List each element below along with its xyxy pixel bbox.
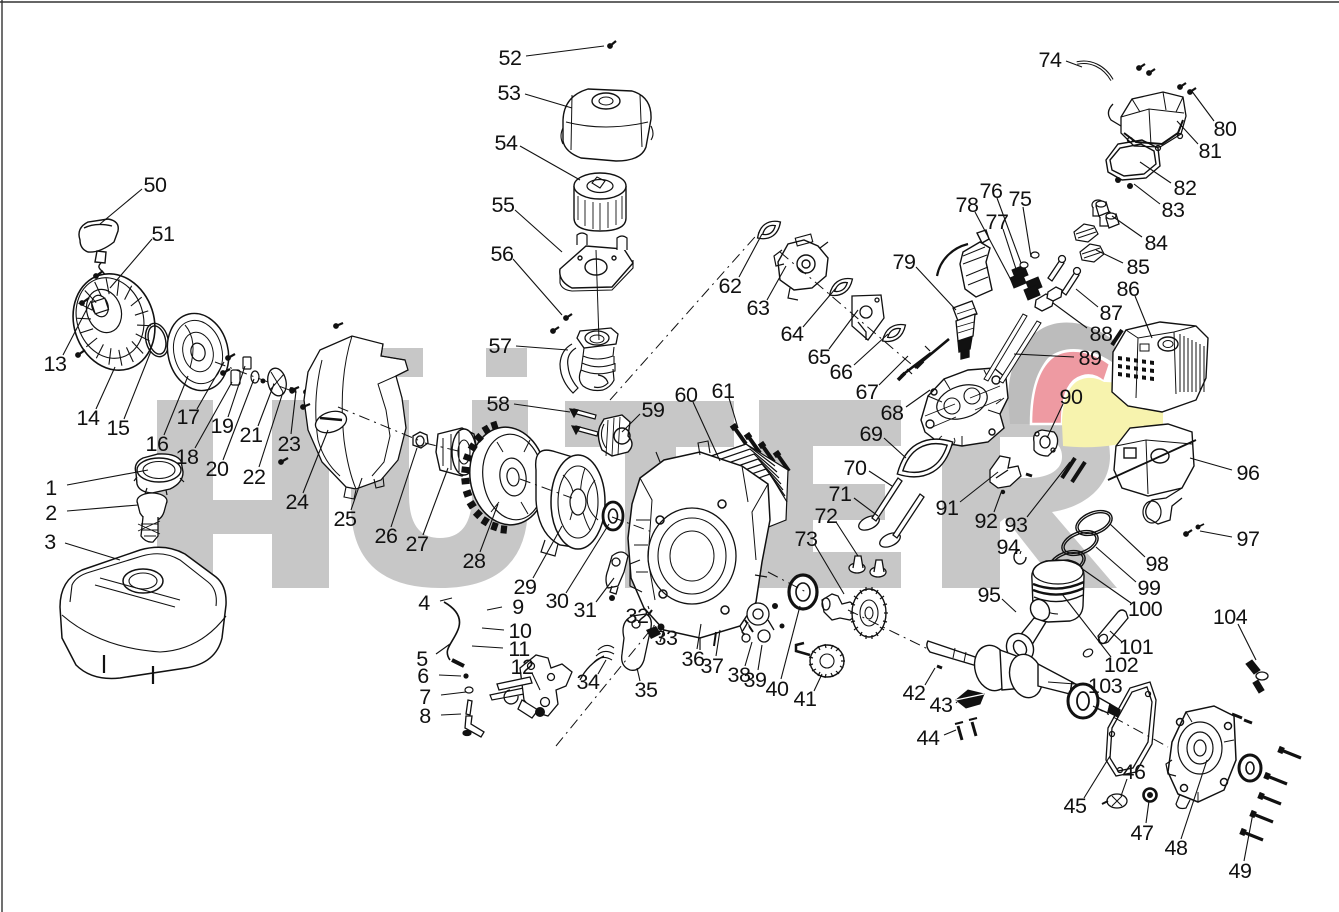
svg-text:74: 74 bbox=[1039, 48, 1062, 72]
svg-text:18: 18 bbox=[176, 445, 199, 469]
svg-text:22: 22 bbox=[243, 465, 266, 489]
svg-text:42: 42 bbox=[903, 681, 926, 705]
svg-text:51: 51 bbox=[152, 222, 175, 246]
svg-text:92: 92 bbox=[975, 509, 998, 533]
svg-text:69: 69 bbox=[860, 422, 883, 446]
svg-text:35: 35 bbox=[635, 678, 658, 702]
svg-text:72: 72 bbox=[815, 504, 838, 528]
svg-text:86: 86 bbox=[1117, 277, 1140, 301]
svg-text:67: 67 bbox=[856, 380, 879, 404]
svg-text:39: 39 bbox=[744, 668, 767, 692]
svg-text:65: 65 bbox=[808, 345, 831, 369]
svg-text:76: 76 bbox=[980, 179, 1003, 203]
svg-text:104: 104 bbox=[1213, 605, 1248, 629]
svg-text:46: 46 bbox=[1123, 760, 1146, 784]
svg-text:96: 96 bbox=[1237, 461, 1260, 485]
svg-text:68: 68 bbox=[881, 401, 904, 425]
svg-text:85: 85 bbox=[1127, 255, 1150, 279]
svg-text:63: 63 bbox=[747, 296, 770, 320]
svg-text:71: 71 bbox=[829, 482, 852, 506]
svg-text:57: 57 bbox=[489, 334, 512, 358]
svg-text:61: 61 bbox=[712, 379, 735, 403]
svg-text:95: 95 bbox=[978, 583, 1001, 607]
svg-text:31: 31 bbox=[574, 598, 597, 622]
svg-text:103: 103 bbox=[1088, 674, 1123, 698]
svg-text:89: 89 bbox=[1079, 346, 1102, 370]
svg-text:20: 20 bbox=[206, 457, 229, 481]
svg-text:29: 29 bbox=[514, 575, 537, 599]
svg-text:100: 100 bbox=[1128, 597, 1163, 621]
svg-text:47: 47 bbox=[1131, 821, 1154, 845]
svg-text:77: 77 bbox=[986, 210, 1009, 234]
svg-text:43: 43 bbox=[930, 693, 953, 717]
svg-text:24: 24 bbox=[286, 490, 309, 514]
svg-text:37: 37 bbox=[701, 654, 724, 678]
svg-text:4: 4 bbox=[418, 591, 430, 615]
svg-text:53: 53 bbox=[498, 81, 521, 105]
svg-text:93: 93 bbox=[1005, 513, 1028, 537]
svg-text:91: 91 bbox=[936, 496, 959, 520]
svg-text:55: 55 bbox=[492, 193, 515, 217]
svg-text:73: 73 bbox=[795, 527, 818, 551]
svg-text:82: 82 bbox=[1174, 176, 1197, 200]
svg-text:48: 48 bbox=[1165, 836, 1188, 860]
svg-text:2: 2 bbox=[45, 501, 56, 525]
svg-text:16: 16 bbox=[146, 432, 169, 456]
svg-text:66: 66 bbox=[830, 360, 853, 384]
svg-text:60: 60 bbox=[675, 383, 698, 407]
svg-text:49: 49 bbox=[1229, 859, 1252, 883]
svg-text:79: 79 bbox=[893, 250, 916, 274]
svg-text:50: 50 bbox=[144, 173, 167, 197]
svg-text:84: 84 bbox=[1145, 231, 1168, 255]
svg-text:80: 80 bbox=[1214, 117, 1237, 141]
svg-text:97: 97 bbox=[1237, 527, 1260, 551]
svg-text:13: 13 bbox=[44, 352, 67, 376]
svg-text:33: 33 bbox=[655, 626, 678, 650]
svg-text:15: 15 bbox=[107, 416, 130, 440]
svg-text:62: 62 bbox=[719, 274, 742, 298]
svg-text:34: 34 bbox=[577, 670, 600, 694]
svg-text:12: 12 bbox=[511, 655, 534, 679]
svg-text:54: 54 bbox=[495, 131, 518, 155]
svg-text:19: 19 bbox=[211, 414, 234, 438]
svg-text:1: 1 bbox=[45, 476, 56, 500]
svg-text:21: 21 bbox=[240, 423, 263, 447]
svg-text:52: 52 bbox=[499, 46, 522, 70]
svg-text:27: 27 bbox=[406, 532, 429, 556]
svg-text:90: 90 bbox=[1060, 385, 1083, 409]
svg-text:59: 59 bbox=[642, 398, 665, 422]
svg-text:17: 17 bbox=[177, 405, 200, 429]
svg-text:81: 81 bbox=[1199, 139, 1222, 163]
svg-text:88: 88 bbox=[1090, 322, 1113, 346]
svg-text:64: 64 bbox=[781, 322, 804, 346]
svg-text:78: 78 bbox=[956, 193, 979, 217]
svg-text:40: 40 bbox=[766, 677, 789, 701]
svg-text:83: 83 bbox=[1162, 198, 1185, 222]
svg-text:23: 23 bbox=[278, 432, 301, 456]
svg-text:98: 98 bbox=[1146, 552, 1169, 576]
svg-text:28: 28 bbox=[463, 549, 486, 573]
svg-text:3: 3 bbox=[44, 530, 56, 554]
svg-text:44: 44 bbox=[917, 726, 940, 750]
svg-text:58: 58 bbox=[487, 392, 510, 416]
svg-text:14: 14 bbox=[77, 406, 100, 430]
svg-text:94: 94 bbox=[997, 535, 1020, 559]
svg-text:8: 8 bbox=[419, 704, 431, 728]
svg-text:41: 41 bbox=[794, 687, 817, 711]
svg-text:75: 75 bbox=[1009, 187, 1032, 211]
svg-text:45: 45 bbox=[1064, 794, 1087, 818]
svg-text:30: 30 bbox=[546, 589, 569, 613]
svg-text:70: 70 bbox=[844, 456, 867, 480]
svg-text:25: 25 bbox=[334, 507, 357, 531]
svg-text:26: 26 bbox=[375, 524, 398, 548]
svg-text:56: 56 bbox=[491, 242, 514, 266]
svg-text:32: 32 bbox=[626, 604, 649, 628]
